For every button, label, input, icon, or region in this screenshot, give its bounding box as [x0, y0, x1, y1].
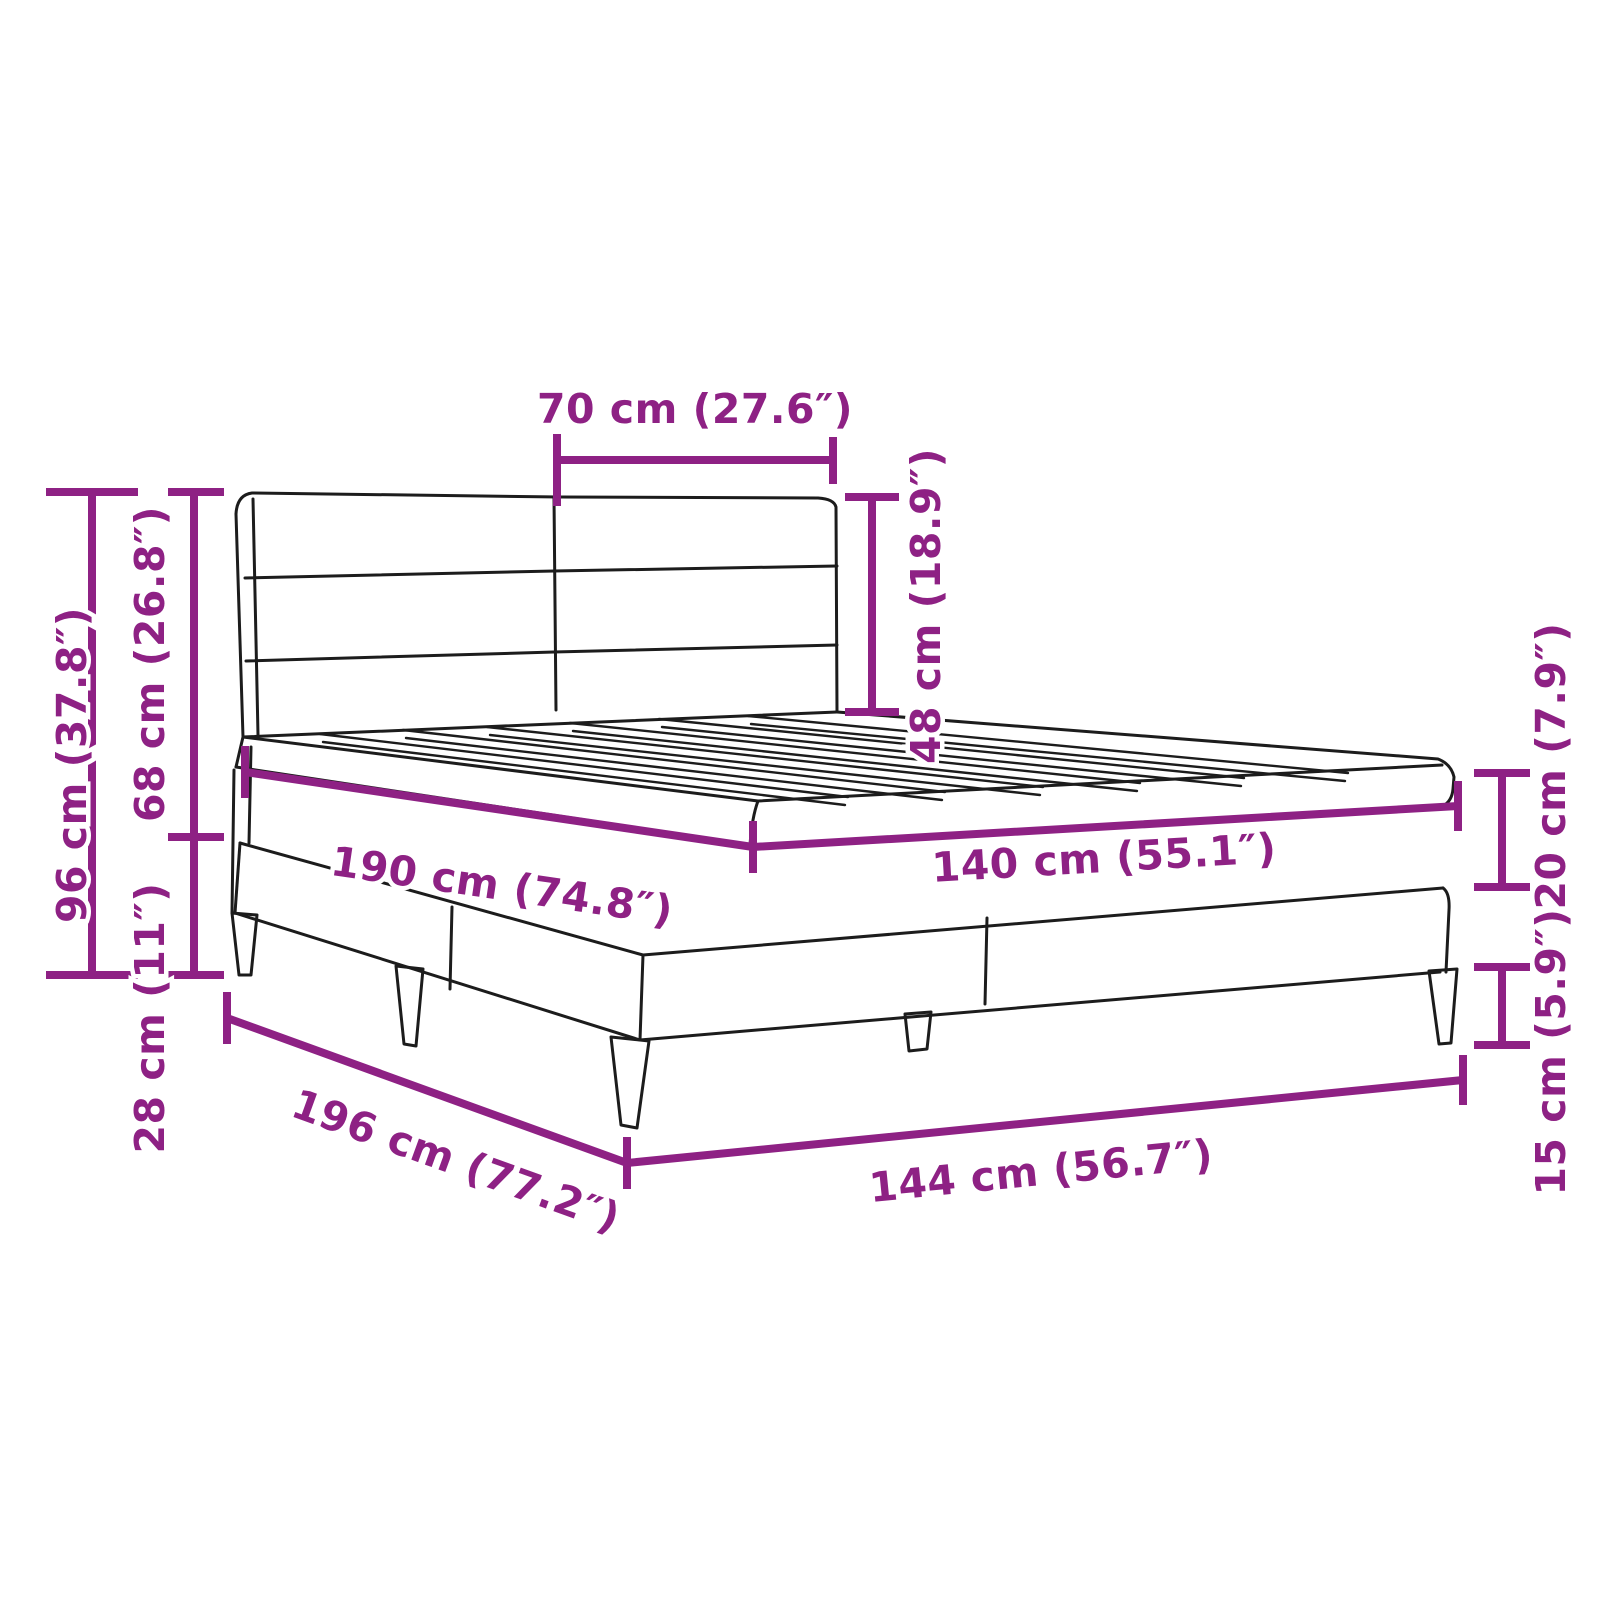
frame-front-top-edge	[643, 888, 1443, 955]
dim-line-70	[557, 434, 833, 506]
dim-label-leg-height: 15 cm (5.9″)	[1527, 908, 1575, 1195]
dim-label-upper-height: 68 cm (26.8″)	[126, 506, 174, 822]
diagram-canvas: 70 cm (27.6″) 48 cm (18.9″) 96 cm (37.8″…	[0, 0, 1600, 1600]
frame-front-bottom-edge	[640, 972, 1440, 1040]
dim-label-outer-width: 144 cm (56.7″)	[867, 1130, 1215, 1212]
frame-left-end-edge	[235, 843, 240, 913]
slat-lines	[320, 716, 1348, 805]
headboard-outline	[236, 493, 837, 712]
headboard-seam-lower	[246, 645, 837, 661]
dimension-diagram: 70 cm (27.6″) 48 cm (18.9″) 96 cm (37.8″…	[0, 0, 1600, 1600]
dim-label-sleeping-length: 190 cm (74.8″)	[328, 837, 676, 935]
frame-right-end-edge	[1443, 888, 1449, 972]
leg-foot-right	[1429, 969, 1457, 1044]
dim-label-headboard-half-width: 70 cm (27.6″)	[537, 385, 853, 433]
leg-foot-left	[611, 1037, 649, 1128]
dim-label-total-height: 96 cm (37.8″)	[48, 607, 96, 923]
dim-line-68-28	[168, 492, 224, 975]
dimension-lines	[46, 434, 1530, 1189]
frame-left-bottom-edge	[235, 913, 640, 1040]
frame-front-corner-edge	[640, 955, 643, 1040]
frame-front-seam	[985, 918, 987, 1004]
headboard-middle-seam	[554, 497, 556, 710]
dim-line-15	[1474, 967, 1530, 1045]
headboard-left-edge	[236, 514, 243, 737]
slat-line	[748, 716, 1348, 781]
dim-line-190	[245, 746, 753, 873]
dim-line-20	[1474, 773, 1530, 887]
headboard-seam-upper	[245, 566, 837, 578]
head-post-inner	[249, 747, 251, 843]
leg-head-left	[232, 913, 257, 975]
dim-label-headboard-panel-height: 48 cm (18.9″)	[902, 448, 950, 764]
head-post-outer	[232, 770, 234, 913]
dim-label-platform-thickness: 20 cm (7.9″)	[1527, 622, 1575, 909]
dim-label-base-height: 28 cm (11″)	[126, 883, 174, 1154]
frame-left-seam	[450, 907, 452, 989]
bed-drawing	[232, 493, 1457, 1128]
headboard-left-inner-edge	[253, 499, 258, 735]
leg-left-middle	[396, 966, 423, 1046]
dim-line-48	[845, 497, 899, 712]
